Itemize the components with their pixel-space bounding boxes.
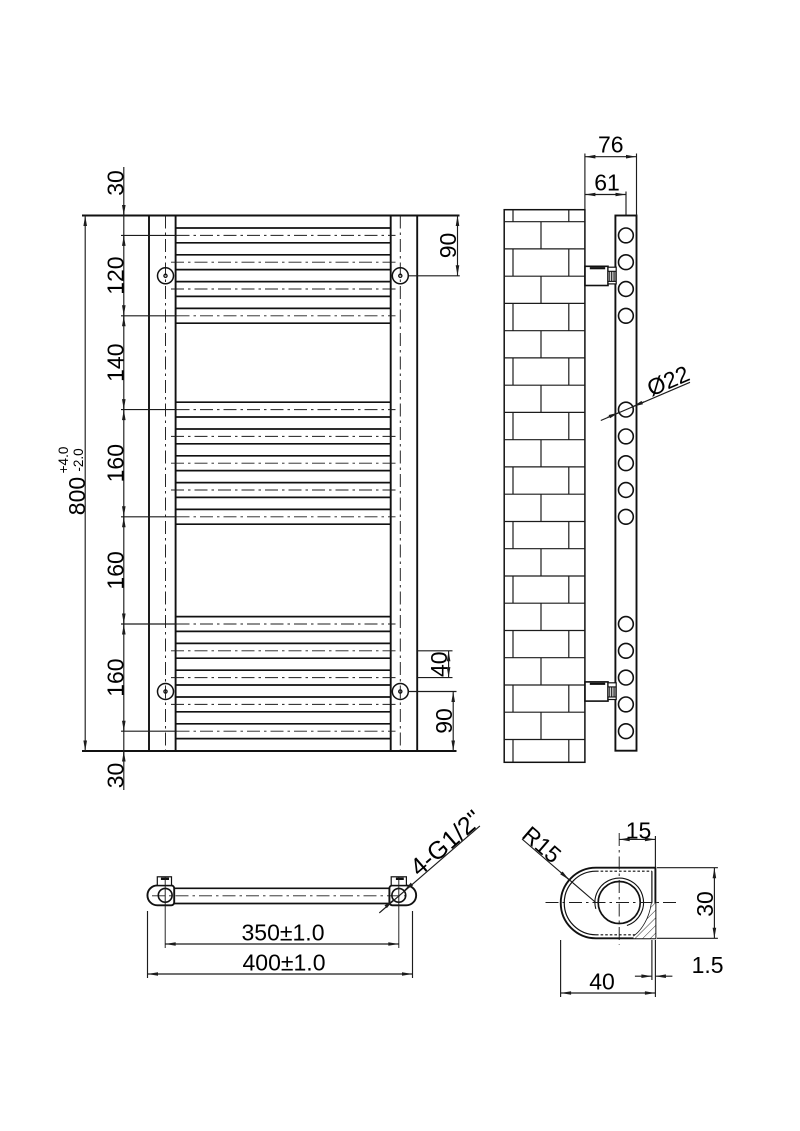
svg-text:90: 90 [431, 708, 457, 734]
svg-text:76: 76 [598, 132, 624, 158]
svg-text:160: 160 [102, 658, 128, 696]
svg-text:1.5: 1.5 [692, 952, 724, 978]
svg-text:40: 40 [426, 651, 452, 677]
svg-text:15: 15 [626, 817, 652, 843]
svg-text:160: 160 [102, 444, 128, 482]
svg-text:30: 30 [692, 891, 718, 917]
svg-text:61: 61 [594, 170, 620, 196]
svg-text:160: 160 [102, 551, 128, 589]
svg-text:40: 40 [589, 969, 615, 995]
svg-text:+4.0: +4.0 [56, 447, 71, 474]
svg-text:30: 30 [102, 763, 128, 789]
svg-text:90: 90 [435, 233, 461, 259]
svg-text:140: 140 [102, 344, 128, 382]
svg-text:350±1.0: 350±1.0 [242, 919, 325, 945]
svg-text:30: 30 [102, 170, 128, 196]
svg-text:-2.0: -2.0 [71, 448, 86, 471]
svg-text:400±1.0: 400±1.0 [243, 949, 326, 975]
svg-text:800: 800 [64, 477, 90, 515]
svg-text:120: 120 [102, 256, 128, 294]
